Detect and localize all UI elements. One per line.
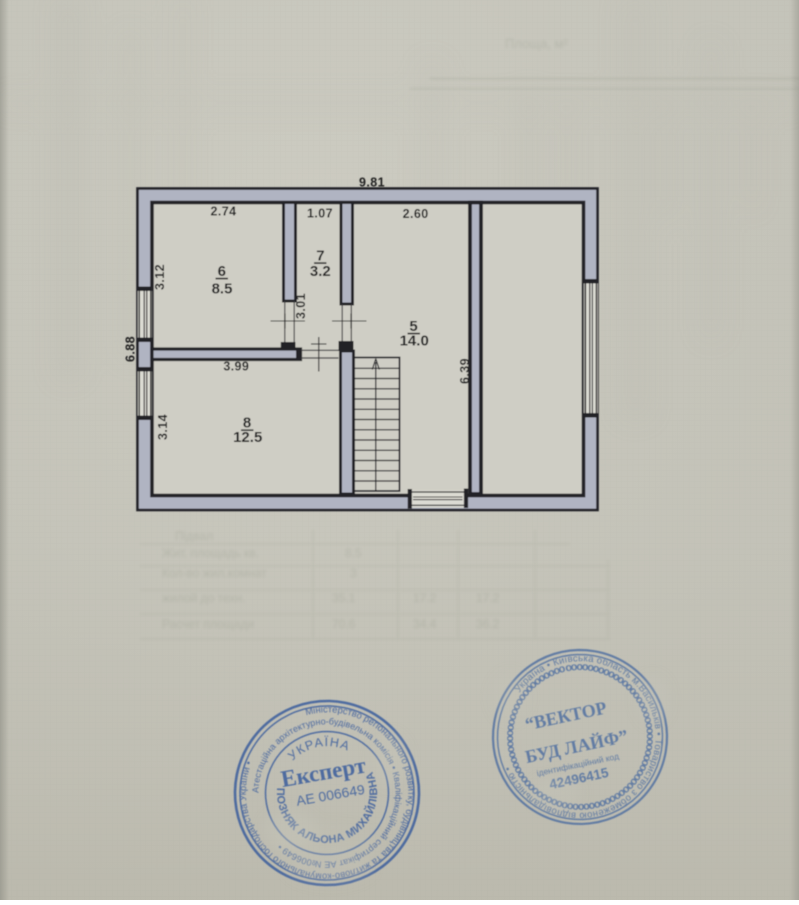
svg-text:2.60: 2.60 — [403, 207, 429, 221]
svg-text:3: 3 — [350, 566, 357, 580]
svg-text:36.2: 36.2 — [476, 617, 500, 631]
svg-text:3.01: 3.01 — [294, 293, 308, 319]
svg-text:14.0: 14.0 — [400, 333, 429, 350]
svg-text:17.2: 17.2 — [476, 591, 500, 605]
svg-text:Площа, м²: Площа, м² — [505, 36, 568, 51]
svg-text:2.74: 2.74 — [211, 205, 237, 219]
svg-text:Жит. площадь кв.: Жит. площадь кв. — [162, 546, 259, 560]
svg-text:17.2: 17.2 — [413, 591, 437, 605]
svg-text:6.88: 6.88 — [124, 336, 138, 362]
svg-text:8.5: 8.5 — [212, 281, 233, 298]
svg-text:3.14: 3.14 — [156, 414, 170, 440]
svg-text:1.07: 1.07 — [307, 207, 333, 221]
svg-text:35.1: 35.1 — [332, 591, 356, 605]
svg-text:8.5: 8.5 — [345, 546, 362, 560]
svg-text:Расчет площади: Расчет площади — [162, 617, 254, 631]
svg-text:6: 6 — [218, 263, 226, 280]
svg-text:70.6: 70.6 — [332, 617, 356, 631]
svg-text:Підвал: Підвал — [175, 529, 213, 543]
svg-text:3.12: 3.12 — [153, 264, 167, 290]
svg-text:34.4: 34.4 — [413, 617, 437, 631]
svg-text:Кол-во жил.комнат: Кол-во жил.комнат — [162, 566, 267, 580]
svg-text:6.39: 6.39 — [458, 358, 472, 384]
svg-text:12.5: 12.5 — [233, 429, 262, 446]
svg-text:9.81: 9.81 — [359, 176, 385, 190]
svg-text:3.99: 3.99 — [223, 360, 249, 374]
svg-text:7: 7 — [316, 248, 324, 265]
svg-text:жилой до техн.: жилой до техн. — [162, 591, 245, 605]
svg-text:3.2: 3.2 — [310, 263, 331, 280]
